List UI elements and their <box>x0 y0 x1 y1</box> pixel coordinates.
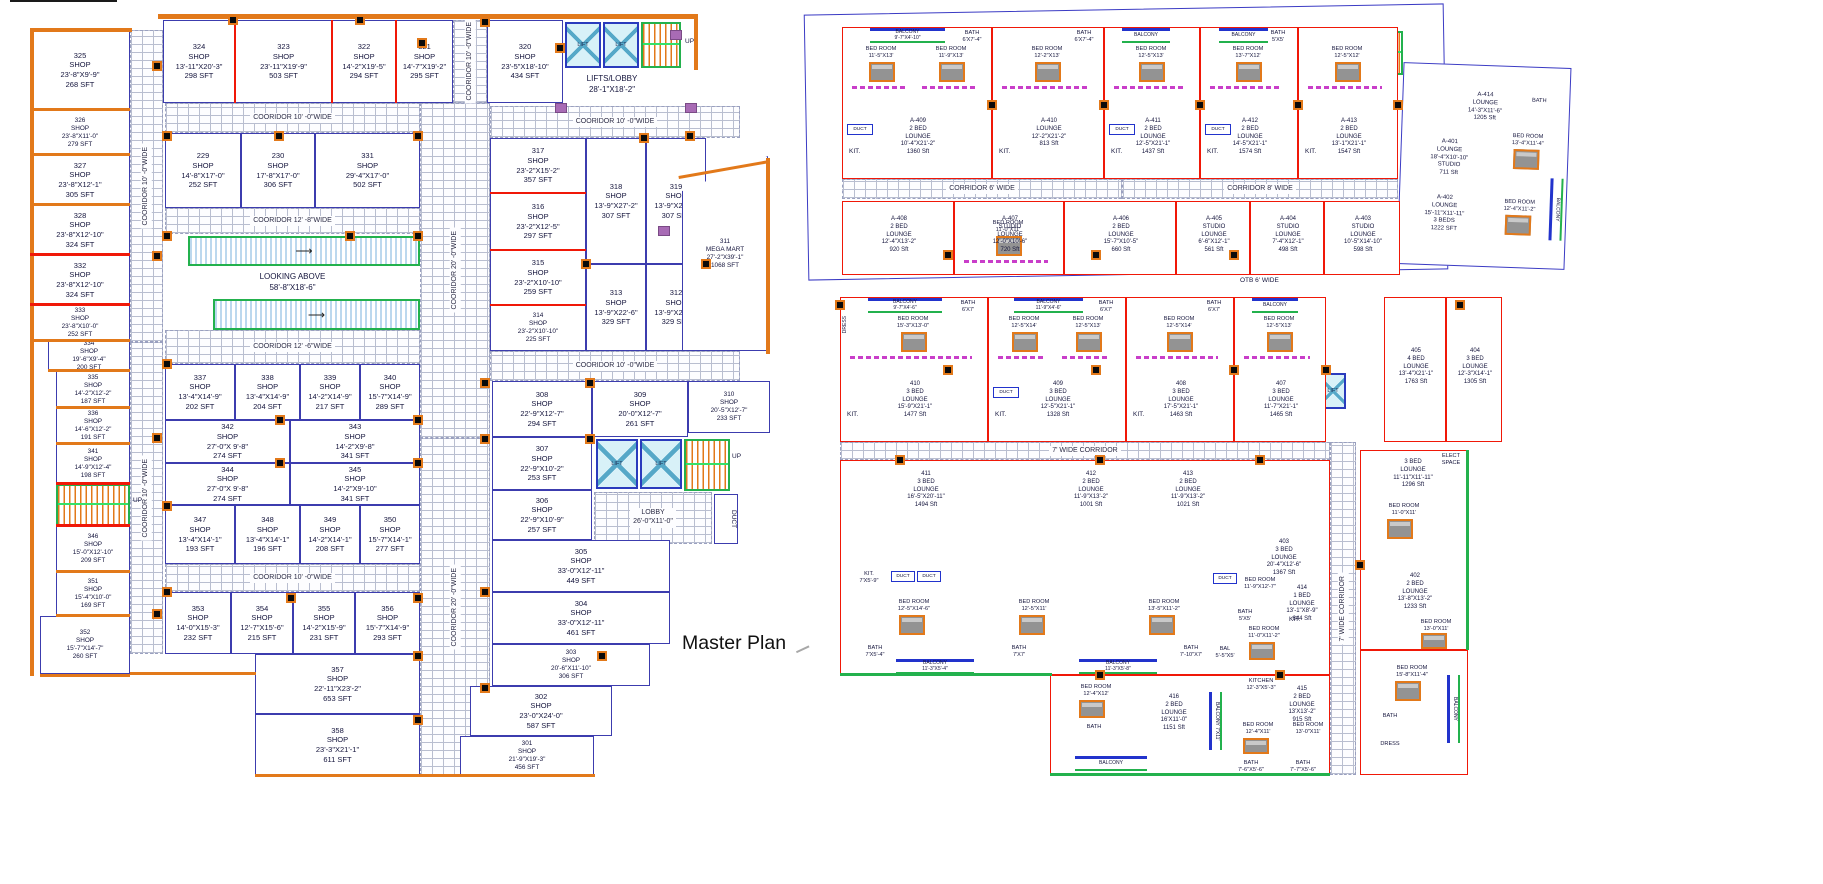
wall-div-4 <box>30 253 130 256</box>
column-marker <box>480 683 490 693</box>
bed-icon <box>1139 62 1165 82</box>
bath-label: BATH <box>1373 713 1407 720</box>
bed-icon <box>1035 62 1061 82</box>
unit-label: A-4112 BEDLOUNGE12'-5"X21'-1"1437 Sft <box>1117 118 1189 157</box>
shop-331: 331SHOP29'-4"X17'-0"502 SFT <box>315 133 420 208</box>
unit-label: A-4122 BEDLOUNGE14'-5"X21'-1"1574 Sft <box>1214 118 1286 157</box>
page-title: Master Plan <box>682 632 786 655</box>
bedroom-label: BED ROOM13'-5"X11'-2" <box>1133 599 1195 613</box>
bedroom-label: BED ROOM12'-5"X13' <box>1240 316 1318 330</box>
apartment-floor-plan: CORRIDOR 6' WIDECORRIDOR 8' WIDELIFTLIFT… <box>800 5 1580 780</box>
zone-bottom-right: BED ROOM15'-8"X11'-4"BATHDRESSBALCONY <box>1360 650 1468 775</box>
duct: DUCT <box>1213 573 1237 584</box>
shop-334: 334SHOP19'-6"X9'-4"200 SFT <box>48 341 130 371</box>
column-marker <box>413 131 423 141</box>
wall-topdiv-2 <box>331 20 333 103</box>
bed-icon <box>1267 332 1293 352</box>
lift-top-1: LIFT <box>565 22 601 68</box>
wall-green-bottom <box>1050 773 1330 776</box>
unit-label-403: 4033 BEDLOUNGE20'-4"X12'-6"1367 Sft <box>1249 539 1319 578</box>
column-marker <box>835 300 845 310</box>
column-marker <box>1095 670 1105 680</box>
window-strip <box>852 86 906 89</box>
shop-347: 347SHOP13'-4"X14'-1"193 SFT <box>165 505 235 564</box>
wall-div-13 <box>56 614 130 617</box>
bedroom-label: BED ROOM12'-4"X11' <box>1229 722 1287 736</box>
column-marker <box>1195 100 1205 110</box>
column-marker <box>162 131 172 141</box>
unit-a-408: A-4082 BEDLOUNGE12'-4"X13'-2"920 Sft <box>842 201 954 275</box>
wall-bottom-step <box>130 672 256 675</box>
shop-351: 351SHOP15'-4"X10'-0"169 SFT <box>56 572 130 616</box>
shop-343: 343SHOP14'-2"X9'-8"341 SFT <box>290 420 420 463</box>
bath-label: BATH6'X7'-4" <box>1065 30 1103 44</box>
unit-label-a-401: A-401LOUNGE18'-4"X10'-10"STUDIO711 Sft <box>1413 138 1486 179</box>
bedroom-label: BED ROOM12'-4"X11'-2" <box>1489 198 1549 214</box>
bed-icon <box>1079 700 1105 718</box>
balcony: BALCONY <box>1252 298 1298 313</box>
bath-label: BATH6'X7' <box>949 300 987 314</box>
unit-label: 4073 BEDLOUNGE11'-7"X21'-1"1465 Sft <box>1245 381 1317 420</box>
zone-bottom-mid: BED ROOM12'-4"X12'BATH4162 BEDLOUNGE16'X… <box>1050 675 1330 775</box>
column-marker <box>480 587 490 597</box>
wall-div-8 <box>56 406 130 409</box>
column-marker <box>152 251 162 261</box>
shop-324: 324SHOP13'-11"X20'-3"298 SFT <box>163 20 235 103</box>
duct: DUCT <box>847 124 873 135</box>
bedroom-label: BED ROOM12'-5"X13' <box>1110 46 1192 60</box>
wall-div-1 <box>30 108 130 111</box>
wall-bottom-outer <box>255 774 595 777</box>
bed-icon <box>1167 332 1193 352</box>
column-marker <box>1091 250 1101 260</box>
unit-label: 4093 BEDLOUNGE12'-5"X21'-1"1328 Sft <box>1022 381 1094 420</box>
shop-336: 336SHOP14'-6"X12'-2"191 SFT <box>56 408 130 444</box>
bedroom-label: BED ROOM11'-5"X13' <box>848 46 914 60</box>
column-marker <box>413 231 423 241</box>
bal-label: BAL5'-5"X5' <box>1207 646 1243 660</box>
column-marker <box>1229 250 1239 260</box>
unit-a-412: BALCONYBATH5'X5'BED ROOM13'-7"X12'DUCTKI… <box>1200 27 1298 179</box>
shop-317: 317SHOP23'-2"X15'-2"357 SFT <box>490 138 586 193</box>
shop-323: 323SHOP23'-11"X19'-9"503 SFT <box>235 20 332 103</box>
unit-a-407: BED ROOM11'-0"X11'A-407STUDIOLOUNGE12'-0… <box>954 201 1064 275</box>
window-strip <box>964 260 1048 263</box>
column-marker <box>413 593 423 603</box>
bedroom-label: BED ROOM12'-2"X13' <box>998 46 1096 60</box>
vbox-1 <box>670 30 682 40</box>
column-marker <box>413 458 423 468</box>
bath-label: BATH7'X7' <box>999 645 1039 659</box>
shop-342: 342SHOP27'-0"X 9'-8"274 SFT <box>165 420 290 463</box>
column-marker <box>480 17 490 27</box>
wall-div-7 <box>48 369 130 372</box>
column-marker <box>413 715 423 725</box>
column-marker <box>639 133 649 143</box>
column-marker <box>417 38 427 48</box>
window-strip <box>922 86 976 89</box>
unit-label-416: 4162 BEDLOUNGE16'X11'-0"1151 Sft <box>1143 694 1205 733</box>
shop-316: 316SHOP23'-2"X12'-5"297 SFT <box>490 193 586 250</box>
stair-left <box>56 484 130 526</box>
lift-mid-2: LIFT <box>640 439 682 489</box>
bath-label: BATH7'-6"X5'-6" <box>1229 760 1273 774</box>
wall-top-left <box>30 28 132 32</box>
balcony: BALCONY <box>1075 756 1147 771</box>
column-marker <box>162 587 172 597</box>
shop-305: 305SHOP33'-0"X12'-11"449 SFT <box>492 540 670 592</box>
shop-301: 301SHOP21'-9"X19'-3"456 SFT <box>460 736 594 776</box>
unit-label: A-4132 BEDLOUNGE13'-1"X21'-1"1547 Sft <box>1313 118 1385 157</box>
bed-icon <box>939 62 965 82</box>
wall-div-3 <box>30 203 130 206</box>
bed-icon <box>1019 615 1045 635</box>
shop-356: 356SHOP15'-7"X14'-9"293 SFT <box>355 592 420 654</box>
bed-icon <box>1243 738 1269 754</box>
shop-310: 310SHOP20'-5"X12'-7"233 SFT <box>688 381 770 433</box>
shop-332: 332SHOP23'-8"X12'-10"324 SFT <box>30 255 130 305</box>
shop-350: 350SHOP15'-7"X14'-1"277 SFT <box>360 505 420 564</box>
window-strip <box>850 356 972 359</box>
unit-407: BALCONYBED ROOM12'-5"X13'4073 BEDLOUNGE1… <box>1234 297 1326 442</box>
wall-div-2 <box>30 153 130 156</box>
zone-lower-left: 4113 BEDLOUNGE16'-5"X20'-11"1494 Sft4122… <box>840 460 1330 675</box>
unit-a-406: A-4062 BEDLOUNGE15'-7"X10'-5"660 Sft <box>1064 201 1176 275</box>
bed-icon <box>1076 332 1102 352</box>
column-marker <box>555 43 565 53</box>
shop-307: 307SHOP22'-9"X10'-2"253 SFT <box>492 437 592 490</box>
column-marker <box>274 131 284 141</box>
bath-label: BATH <box>1077 724 1111 731</box>
kitchen-label: KIT. <box>999 148 1010 155</box>
bedroom-label: BED ROOM15'-8"X11'-4" <box>1379 665 1445 679</box>
up-label-left: UP <box>133 497 142 504</box>
elect-space-label: ELECTSPACE <box>1435 453 1467 467</box>
wall-green-right <box>1466 450 1469 650</box>
bedroom-label: BED ROOM12'-4"X12' <box>1065 684 1127 698</box>
unit-label-412: 4122 BEDLOUNGE11'-9"X13'-2"1001 Sft <box>1059 471 1123 510</box>
wall-div-9 <box>56 442 130 445</box>
corridor-h-12-8: COORIDOR 12' -8"WIDE <box>165 208 420 234</box>
wall-rc-3 <box>490 304 586 306</box>
corridor-h-bottom: COORIDOR 10' -0"WIDE <box>165 564 420 592</box>
column-marker <box>228 15 238 25</box>
unit-label: 4043 BEDLOUNGE12'-3"X14'-1"1305 Sft <box>1439 348 1511 387</box>
unit-label: A-410LOUNGE12'-2"X21'-2"813 Sft <box>1013 118 1085 149</box>
column-marker <box>162 359 172 369</box>
column-marker <box>597 651 607 661</box>
duct: DUCT <box>891 571 915 582</box>
bath-label: BATH6'X7' <box>1195 300 1233 314</box>
wall-div-14 <box>40 674 130 677</box>
shop-302: 302SHOP23'-0"X24'-0"587 SFT <box>470 686 612 736</box>
shop-339: 339SHOP14'-2"X14'-9"217 SFT <box>300 364 360 420</box>
shop-353: 353SHOP14'-0"X15'-3"232 SFT <box>165 592 231 654</box>
balcony: BALCONY11'-9"X4'-6" <box>1014 298 1083 313</box>
window-strip <box>1002 86 1088 89</box>
window-strip <box>998 356 1046 359</box>
bed-icon <box>1249 642 1275 660</box>
column-marker <box>480 434 490 444</box>
shop-322: 322SHOP14'-2"X19'-5"294 SFT <box>332 20 396 103</box>
shop-345: 345SHOP14'-2"X9'-10"341 SFT <box>290 463 420 505</box>
corridor-h-right-mid: COORIDOR 10' -0"WIDE <box>490 351 740 381</box>
bed-icon <box>901 332 927 352</box>
shop-348: 348SHOP13'-4"X14'-1"196 SFT <box>235 505 300 564</box>
bed-icon <box>869 62 895 82</box>
shop-229: 229SHOP14'-8"X17'-0"252 SFT <box>165 133 241 208</box>
corridor-upper-left: CORRIDOR 6' WIDE <box>842 179 1122 199</box>
column-marker <box>1099 100 1109 110</box>
column-marker <box>413 651 423 661</box>
shop-354: 354SHOP12'-7"X15'-6"215 SFT <box>231 592 293 654</box>
column-marker <box>685 131 695 141</box>
unit-label-411: 4113 BEDLOUNGE16'-5"X20'-11"1494 Sft <box>891 471 961 510</box>
shop-335: 335SHOP14'-2"X12'-2"187 SFT <box>56 371 130 408</box>
wall-div-11 <box>56 524 130 527</box>
unit-a-409: BALCONY9'-7"X4'-10"BATH6'X7'-4"BED ROOM1… <box>842 27 992 179</box>
balcony: BALCONY11'-3"X5'-8" <box>1079 659 1157 674</box>
kitchen-label: KIT. <box>847 411 858 418</box>
shop-355: 355SHOP14'-2"X15'-9"231 SFT <box>293 592 355 654</box>
duct: DUCT <box>993 387 1019 398</box>
bed-icon <box>1335 62 1361 82</box>
wall-div-6 <box>30 339 130 342</box>
column-marker <box>895 455 905 465</box>
window-strip <box>1308 86 1382 89</box>
column-marker <box>1293 100 1303 110</box>
looking-above-label: LOOKING ABOVE58'-8"X18'-6" <box>165 269 420 297</box>
shop-303: 303SHOP20'-6"X11'-10"306 SFT <box>492 644 650 686</box>
escalator-1: ⟶ <box>188 236 420 266</box>
unit-label: 4103 BEDLOUNGE15'-9"X21'-1"1477 Sft <box>879 381 951 420</box>
window-strip <box>1114 86 1184 89</box>
bedroom-label: BED ROOM13'-0"X11' <box>1287 722 1329 736</box>
column-marker <box>275 415 285 425</box>
bed-icon <box>899 615 925 635</box>
column-marker <box>701 259 711 269</box>
bedroom-label: BED ROOM11'-9"X12'-7" <box>1229 577 1291 591</box>
shop-341: 341SHOP14'-9"X12'-4"198 SFT <box>56 444 130 484</box>
shop-357: 357SHOP22'-11"X23'-2"653 SFT <box>255 654 420 714</box>
unit-409: BALCONY11'-9"X4'-6"BATH6'X7'BED ROOM12'-… <box>988 297 1126 442</box>
window-strip <box>1136 356 1218 359</box>
kitchen-label: KIT. <box>1133 411 1144 418</box>
unit-label-413: 4132 BEDLOUNGE11'-9"X13'-2"1021 Sft <box>1156 471 1220 510</box>
bedroom-label: BED ROOM12'-5"X13' <box>1058 316 1118 330</box>
unit-a-403: A-403STUDIOLOUNGE10'-5"X14'-10"598 Sft <box>1324 201 1400 275</box>
column-marker <box>480 378 490 388</box>
balcony-wing: BALCONY <box>1548 178 1563 240</box>
lobby-area: LOBBY26'-0"X11'-0" <box>594 492 712 544</box>
column-marker <box>1255 455 1265 465</box>
shop-308: 308SHOP22'-9"X12'-7"294 SFT <box>492 381 592 437</box>
shop-352: 352SHOP15'-7"X14'-7"260 SFT <box>40 616 130 674</box>
vbox-3 <box>555 103 567 113</box>
bed-icon <box>1513 149 1540 170</box>
window-strip <box>1062 356 1110 359</box>
shop-327: 327SHOP23'-8"X12'-1"305 SFT <box>30 155 130 205</box>
bath-label: BATH7'X5'-4" <box>855 645 895 659</box>
column-marker <box>581 259 591 269</box>
column-marker <box>152 609 162 619</box>
unit-a-411: BALCONYBED ROOM12'-5"X13'DUCTKIT.A-4112 … <box>1104 27 1200 179</box>
unit-label-a-414: A-414LOUNGE14'-3"X11'-6"1205 Sft <box>1449 91 1522 125</box>
unit-label: A-407STUDIOLOUNGE12'-0"X10'-6"720 Sft <box>974 216 1046 255</box>
unit-a-410: BATH6'X7'-4"BED ROOM12'-2"X13'KIT.A-410L… <box>992 27 1104 179</box>
corridor-h-top: COORIDOR 10' -0"WIDE <box>165 103 420 133</box>
column-marker <box>1455 300 1465 310</box>
window-strip <box>1244 356 1310 359</box>
column-marker <box>275 458 285 468</box>
dress-label: DRESS <box>1373 741 1407 748</box>
bed-icon <box>1149 615 1175 635</box>
bedroom-label: BED ROOM12'-5"X12' <box>1304 46 1390 60</box>
kitchen-label: KIT. <box>1289 616 1300 623</box>
wall-topdiv-3 <box>395 20 397 103</box>
bedroom-label: BED ROOM13'-7"X12' <box>1206 46 1290 60</box>
bed-icon <box>1505 215 1532 236</box>
bedroom-label: BED ROOM12'-5"X11' <box>1003 599 1065 613</box>
shop-309: 309SHOP20'-0"X12'-7"261 SFT <box>592 381 688 437</box>
shop-337: 337SHOP13'-4"X14'-9"202 SFT <box>165 364 235 420</box>
column-marker <box>162 501 172 511</box>
screen-edge-artifact <box>10 0 117 2</box>
stair-top-right <box>641 22 681 68</box>
balcony: BALCONY11'-3"X5'-4" <box>896 659 974 674</box>
shop-304: 304SHOP33'-0"X12'-11"461 SFT <box>492 592 670 644</box>
dress-label: DRESS <box>842 316 848 333</box>
unit-label-a-402: A-402LOUNGE15'-11"X11'-11"3 BEDS1222 SFT <box>1407 193 1482 235</box>
bath-label: BATH <box>1521 97 1557 105</box>
corridor-h-top-right: COORIDOR 10' -0"WIDE <box>490 106 740 138</box>
kitchen-label: KIT. <box>995 411 1006 418</box>
balcony-v-7x11: BALCONY 7'X11' <box>1209 692 1222 750</box>
bed-icon <box>1421 633 1447 649</box>
shop-338: 338SHOP13'-4"X14'-9"204 SFT <box>235 364 300 420</box>
unit-label: 4083 BEDLOUNGE17'-5"X21'-1"1463 Sft <box>1145 381 1217 420</box>
corridor-upper-right: CORRIDOR 8' WIDE <box>1122 179 1398 199</box>
duct-mid: DUCT <box>714 494 738 544</box>
mall-floor-plan: COORIDOR 10' -0"WIDECOORIDOR 10' -0"WIDE… <box>30 8 775 778</box>
lift-mid-1: LIFT <box>596 439 638 489</box>
balcony: BALCONY <box>1122 28 1170 43</box>
corridor-h-12-6: COORIDOR 12' -6"WIDE <box>165 330 420 364</box>
bath-label: BATH6'X7'-4" <box>953 30 991 44</box>
shop-318: 318SHOP13'-9"X27'-2"307 SFT <box>586 138 646 264</box>
column-marker <box>1393 100 1403 110</box>
bed-icon <box>1387 519 1413 539</box>
shop-328: 328SHOP23'-8"X12'-10"324 SFT <box>30 205 130 255</box>
bed-icon <box>1012 332 1038 352</box>
wall-right-top <box>694 14 698 70</box>
up-label-top: UP <box>685 38 694 45</box>
shop-326: 326SHOP23'-8"X11'-0"279 SFT <box>30 110 130 155</box>
shop-313: 313SHOP13'-9"X22'-6"329 SFT <box>586 264 646 351</box>
shop-346: 346SHOP15'-0"X12'-10"209 SFT <box>56 526 130 572</box>
unit-label: A-404STUDIOLOUNGE7'-4"X12'-1"498 Sft <box>1252 216 1324 255</box>
shop-349: 349SHOP14'-2"X14'-1"208 SFT <box>300 505 360 564</box>
bedroom-label: BED ROOM13'-0"X11' <box>1405 619 1467 633</box>
bedroom-label: BED ROOM12'-5"X14' <box>994 316 1054 330</box>
shop-306: 306SHOP22'-9"X10'-9"257 SFT <box>492 490 592 540</box>
unit-410: BALCONY9'-7"X4'-6"BATH6'X7'BED ROOM15'-3… <box>840 297 988 442</box>
lift-top-2: LIFT <box>603 22 639 68</box>
wall-top-outer <box>158 14 696 19</box>
balcony-right: BALCONY <box>1447 675 1460 743</box>
wall-div-12 <box>56 570 130 573</box>
zone-lower-right: 3 BEDLOUNGE11'-11"X11'-11"1296 SftELECTS… <box>1360 450 1468 650</box>
column-marker <box>1321 365 1331 375</box>
unit-label: A-4092 BEDLOUNGE10'-4"X21'-2"1360 Sft <box>882 118 954 157</box>
wall-div-5 <box>30 303 130 306</box>
bed-icon <box>1395 681 1421 701</box>
bedroom-label: BED ROOM12'-5"X14' <box>1132 316 1226 330</box>
shop-315: 315SHOP23'-2"X10'-10"259 SFT <box>490 250 586 305</box>
unit-label: A-405STUDIOLOUNGE6'-6"X12'-1"561 Sft <box>1178 216 1250 255</box>
shop-321: 321SHOP14'-7"X19'-2"295 SFT <box>396 20 453 103</box>
wall-topdiv-1 <box>234 20 236 103</box>
window-strip <box>1210 86 1282 89</box>
unit-a-405: A-405STUDIOLOUNGE6'-6"X12'-1"561 Sft <box>1176 201 1250 275</box>
kitchen-label: KIT. <box>849 148 860 155</box>
corridor-top-right: COORIDOR 10' -0"WIDE <box>453 20 487 103</box>
bath-label: BATH5'X5' <box>1259 30 1297 44</box>
column-marker <box>286 593 296 603</box>
column-marker <box>585 378 595 388</box>
column-marker <box>1229 365 1239 375</box>
page-canvas: COORIDOR 10' -0"WIDECOORIDOR 10' -0"WIDE… <box>0 0 1823 884</box>
column-marker <box>943 250 953 260</box>
column-marker <box>1275 670 1285 680</box>
column-marker <box>152 61 162 71</box>
column-marker <box>585 434 595 444</box>
unit-405: 4054 BEDLOUNGE13'-4"X21'-1"1763 Sft <box>1384 297 1446 442</box>
column-marker <box>162 231 172 241</box>
column-marker <box>355 15 365 25</box>
wall-right-mega <box>766 158 770 354</box>
kitchen-label: KIT.7'X5'-9" <box>849 571 889 585</box>
shop-314: 314SHOP23'-2"X10'-10"225 SFT <box>490 305 586 351</box>
vbox-4 <box>658 226 670 236</box>
lifts-lobby-label: LIFTS/LOBBY28'-1"X18'-2" <box>552 72 672 98</box>
bath-label: BATH7'-7"X5'-6" <box>1281 760 1325 774</box>
wall-green-step <box>840 673 1052 676</box>
shop-230: 230SHOP17'-8"X17'-0"306 SFT <box>241 133 315 208</box>
shop-333: 333SHOP23'-8"X10'-0"252 SFT <box>30 305 130 341</box>
escalator-2: ⟶ <box>213 299 420 330</box>
column-marker <box>345 231 355 241</box>
shop-325: 325SHOP23'-8"X9'-9"268 SFT <box>30 30 130 110</box>
bed-icon <box>1236 62 1262 82</box>
wing-upper-right: A-414LOUNGE14'-3"X11'-6"1205 SftBED ROOM… <box>1397 62 1572 270</box>
up-label-mid: UP <box>732 453 741 460</box>
balcony: BALCONY9'-7"X4'-6" <box>868 298 942 313</box>
stair-mid-right <box>684 439 730 491</box>
balcony: BALCONY9'-7"X4'-10" <box>870 28 945 43</box>
unit-408: BATH6'X7'BED ROOM12'-5"X14'KIT.4083 BEDL… <box>1126 297 1234 442</box>
unit-a-413: BED ROOM12'-5"X12'KIT.A-4132 BEDLOUNGE13… <box>1298 27 1398 179</box>
corridor-left-upper: COORIDOR 10' -0"WIDE <box>130 30 163 342</box>
column-marker <box>413 415 423 425</box>
column-marker <box>1095 455 1105 465</box>
column-marker <box>1091 365 1101 375</box>
bedroom-label: BED ROOM11'-9"X13' <box>918 46 984 60</box>
otb-label: OTB 6' WIDE <box>1240 277 1279 284</box>
wall-rc-2 <box>490 249 586 251</box>
unit-label: A-4082 BEDLOUNGE12'-4"X13'-2"920 Sft <box>863 216 935 255</box>
unit-label: A-403STUDIOLOUNGE10'-5"X14'-10"598 Sft <box>1327 216 1399 255</box>
